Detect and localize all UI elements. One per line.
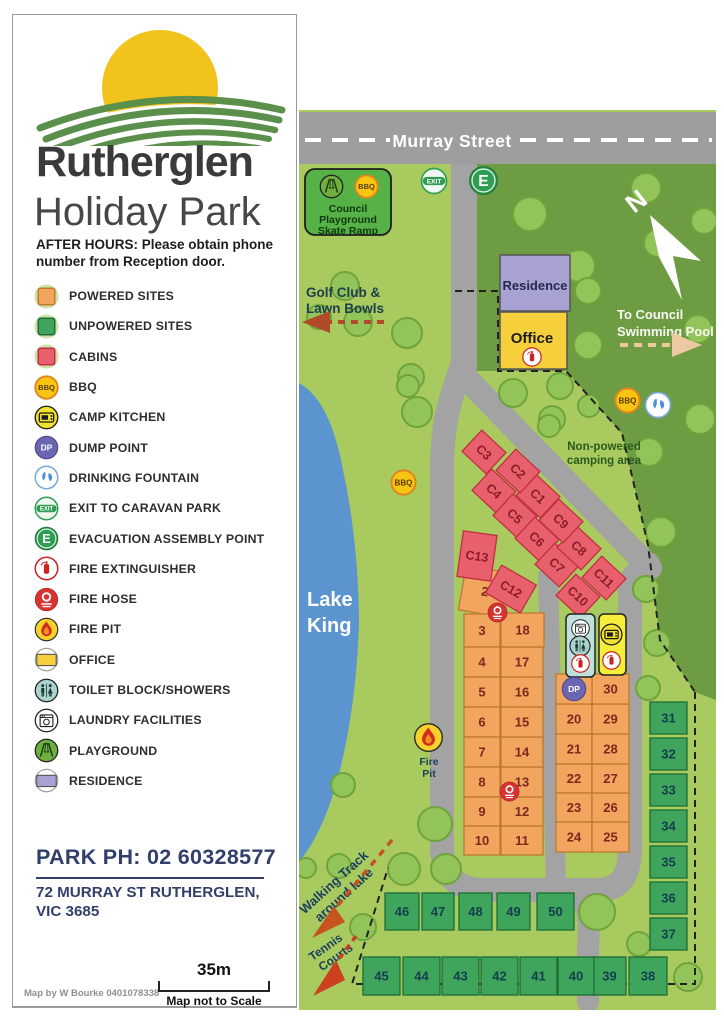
svg-text:Pit: Pit — [422, 768, 436, 780]
svg-text:4: 4 — [478, 655, 486, 670]
svg-text:47: 47 — [431, 904, 445, 919]
powered-site-12: 12 — [501, 797, 543, 826]
evac-icon — [33, 525, 60, 552]
unpowered-site-42: 42 — [481, 957, 518, 995]
fire-hose-icon — [500, 782, 519, 801]
toilet-icon — [570, 636, 590, 656]
scale-note: Map not to Scale — [158, 994, 270, 1008]
legend-item-firepit: FIRE PIT — [33, 614, 264, 644]
svg-text:Swimming Pool: Swimming Pool — [617, 324, 714, 339]
svg-text:27: 27 — [603, 771, 617, 786]
toilet-icon — [33, 677, 60, 704]
powered-site-11: 11 — [501, 826, 543, 855]
powered-site-23: 23 — [556, 793, 592, 822]
svg-text:50: 50 — [548, 904, 562, 919]
scale-bar: 35m Map not to Scale — [158, 960, 270, 1008]
svg-text:Fire: Fire — [419, 756, 438, 768]
legend-label: DRINKING FOUNTAIN — [69, 471, 199, 485]
fire-pit-icon — [415, 724, 443, 752]
park-title-line2: Holiday Park — [34, 190, 261, 235]
unpowered-site-50: 50 — [537, 893, 574, 930]
legend-item-bbq: BBQ — [33, 372, 264, 402]
legend-label: CAMP KITCHEN — [69, 410, 165, 424]
svg-text:14: 14 — [515, 745, 530, 760]
bbq-icon — [391, 470, 415, 494]
unpowered-site-41: 41 — [520, 957, 557, 995]
laundry-icon — [572, 620, 590, 638]
cabin-C13: C13 — [457, 531, 497, 581]
powered-site-6: 6 — [464, 707, 500, 737]
svg-text:20: 20 — [567, 712, 581, 727]
unpowered-site-37: 37 — [650, 918, 687, 950]
evacuation-point-icon — [470, 167, 498, 195]
fountain-icon — [33, 464, 60, 491]
legend-item-laundry: LAUNDRY FACILITIES — [33, 705, 264, 735]
legend-label: LAUNDRY FACILITIES — [69, 713, 202, 727]
svg-text:Lawn Bowls: Lawn Bowls — [306, 301, 384, 316]
powered-site-17: 17 — [501, 647, 543, 677]
svg-text:30: 30 — [603, 682, 617, 697]
lake-label-1: Lake — [307, 589, 353, 611]
residence-icon — [33, 767, 60, 794]
powered-site-24: 24 — [556, 822, 592, 852]
toilet-block — [566, 614, 595, 677]
unpowered-site-39: 39 — [593, 957, 626, 995]
office-label: Office — [511, 330, 554, 347]
unpowered-site-36: 36 — [650, 882, 687, 914]
legend-label: PLAYGROUND — [69, 744, 157, 758]
svg-text:25: 25 — [603, 830, 617, 845]
unpowered-site-33: 33 — [650, 774, 687, 806]
park-phone: PARK PH: 02 60328577 — [36, 845, 276, 870]
unpowered-site-32: 32 — [650, 738, 687, 770]
after-hours-note: AFTER HOURS: Please obtain phone number … — [36, 237, 273, 270]
svg-text:35: 35 — [661, 855, 675, 870]
map-credit: Map by W Bourke 0401078338 — [24, 988, 159, 999]
legend-item-evac: EVACUATION ASSEMBLY POINT — [33, 523, 264, 553]
legend-label: FIRE PIT — [69, 622, 121, 636]
svg-text:12: 12 — [515, 804, 529, 819]
powered-site-9: 9 — [464, 797, 500, 826]
camp-kitchen-block — [599, 614, 626, 675]
council-playground-block: Council Playground Skate Ramp — [305, 169, 391, 237]
svg-text:17: 17 — [515, 655, 529, 670]
dump-point-icon — [562, 677, 585, 700]
svg-text:24: 24 — [567, 830, 582, 845]
bbq-icon — [33, 374, 60, 401]
svg-text:3: 3 — [478, 623, 485, 638]
powered-site-30: 30 — [592, 674, 629, 704]
svg-text:camping area: camping area — [567, 455, 642, 467]
legend-label: UNPOWERED SITES — [69, 319, 192, 333]
fire-hose-icon — [488, 603, 507, 622]
exit-icon — [422, 169, 447, 194]
powered-site-15: 15 — [501, 707, 543, 737]
svg-text:33: 33 — [661, 783, 675, 798]
svg-text:Golf Club &: Golf Club & — [306, 285, 380, 300]
legend-item-square-cabin: CABINS — [33, 342, 264, 372]
kitchen-icon — [33, 404, 60, 431]
unpowered-site-34: 34 — [650, 810, 687, 842]
street-label: Murray Street — [392, 131, 511, 151]
scale-length: 35m — [158, 960, 270, 980]
ext-icon — [33, 555, 60, 582]
hose-icon — [33, 586, 60, 613]
powered-site-27: 27 — [592, 764, 629, 793]
legend-label: EXIT TO CARAVAN PARK — [69, 501, 221, 515]
legend-item-ext: FIRE EXTINGUISHER — [33, 554, 264, 584]
scale-bracket — [158, 981, 270, 992]
svg-text:32: 32 — [661, 747, 675, 762]
legend-item-kitchen: CAMP KITCHEN — [33, 402, 264, 432]
svg-text:44: 44 — [414, 969, 429, 984]
legend-item-fountain: DRINKING FOUNTAIN — [33, 463, 264, 493]
park-map: Murray Street Coun — [299, 110, 716, 1010]
square-cabin-icon — [33, 343, 60, 370]
drinking-fountain-icon — [646, 393, 671, 418]
legend-label: EVACUATION ASSEMBLY POINT — [69, 532, 264, 546]
svg-text:15: 15 — [515, 715, 529, 730]
legend-item-square-unpowered: UNPOWERED SITES — [33, 311, 264, 341]
legend-label: TOILET BLOCK/SHOWERS — [69, 683, 231, 697]
legend-item-dp: DUMP POINT — [33, 432, 264, 462]
legend-label: POWERED SITES — [69, 289, 174, 303]
svg-text:23: 23 — [567, 800, 581, 815]
legend-label: RESIDENCE — [69, 774, 143, 788]
residence-label: Residence — [502, 278, 567, 293]
unpowered-site-40: 40 — [558, 957, 594, 995]
legend-item-hose: FIRE HOSE — [33, 584, 264, 614]
svg-text:43: 43 — [453, 969, 467, 984]
powered-site-28: 28 — [592, 734, 629, 764]
svg-text:38: 38 — [641, 969, 655, 984]
svg-text:6: 6 — [478, 715, 485, 730]
office-icon — [33, 646, 60, 673]
legend-label: CABINS — [69, 350, 117, 364]
square-powered-icon — [33, 283, 60, 310]
powered-site-14: 14 — [501, 737, 543, 767]
svg-text:42: 42 — [492, 969, 506, 984]
laundry-icon — [33, 707, 60, 734]
legend-label: FIRE EXTINGUISHER — [69, 562, 196, 576]
powered-site-16: 16 — [501, 677, 543, 707]
svg-text:10: 10 — [475, 833, 489, 848]
phone-underline — [36, 877, 264, 879]
powered-site-21: 21 — [556, 734, 592, 764]
svg-text:11: 11 — [515, 833, 529, 848]
svg-text:Non-powered: Non-powered — [567, 441, 640, 453]
svg-text:49: 49 — [506, 904, 520, 919]
unpowered-site-46: 46 — [385, 893, 419, 930]
svg-text:36: 36 — [661, 891, 675, 906]
svg-text:Skate Ramp: Skate Ramp — [318, 225, 378, 237]
svg-text:18: 18 — [515, 623, 529, 638]
svg-text:45: 45 — [374, 969, 388, 984]
legend-item-office: OFFICE — [33, 645, 264, 675]
legend-label: BBQ — [69, 380, 97, 394]
svg-text:28: 28 — [603, 742, 617, 757]
svg-text:8: 8 — [478, 775, 485, 790]
lake-label-2: King — [307, 615, 351, 637]
svg-text:46: 46 — [395, 904, 409, 919]
playground-icon — [33, 737, 60, 764]
legend-item-exit: EXIT TO CARAVAN PARK — [33, 493, 264, 523]
unpowered-site-47: 47 — [422, 893, 454, 930]
svg-text:48: 48 — [468, 904, 482, 919]
svg-text:40: 40 — [569, 969, 583, 984]
unpowered-site-43: 43 — [442, 957, 479, 995]
svg-text:22: 22 — [567, 771, 581, 786]
legend-label: OFFICE — [69, 653, 115, 667]
svg-text:29: 29 — [603, 712, 617, 727]
svg-text:37: 37 — [661, 927, 675, 942]
powered-site-29: 29 — [592, 704, 629, 734]
fire-extinguisher-icon — [572, 655, 590, 673]
park-address: 72 MURRAY ST RUTHERGLEN, VIC 3685 — [36, 884, 260, 921]
svg-text:34: 34 — [661, 819, 676, 834]
svg-text:41: 41 — [531, 969, 545, 984]
powered-site-25: 25 — [592, 822, 629, 852]
svg-text:39: 39 — [602, 969, 616, 984]
playground-icon — [320, 175, 343, 198]
powered-site-22: 22 — [556, 764, 592, 793]
svg-text:To Council: To Council — [617, 307, 683, 322]
map-legend: POWERED SITESUNPOWERED SITESCABINSBBQCAM… — [33, 281, 264, 796]
bbq-icon — [355, 175, 378, 198]
powered-site-18: 18 — [501, 613, 544, 647]
unpowered-site-45: 45 — [363, 957, 400, 995]
park-title-line1: Rutherglen — [36, 138, 253, 187]
bbq-icon — [615, 388, 639, 412]
svg-text:21: 21 — [567, 742, 581, 757]
powered-site-4: 4 — [464, 647, 500, 677]
legend-item-square-powered: POWERED SITES — [33, 281, 264, 311]
unpowered-site-44: 44 — [403, 957, 440, 995]
powered-site-8: 8 — [464, 767, 500, 797]
svg-text:26: 26 — [603, 800, 617, 815]
powered-site-26: 26 — [592, 793, 629, 822]
square-unpowered-icon — [33, 313, 60, 340]
dp-icon — [33, 434, 60, 461]
unpowered-site-31: 31 — [650, 702, 687, 734]
powered-site-10: 10 — [464, 826, 500, 855]
svg-text:16: 16 — [515, 685, 529, 700]
powered-site-7: 7 — [464, 737, 500, 767]
legend-item-playground: PLAYGROUND — [33, 735, 264, 765]
svg-text:7: 7 — [478, 745, 485, 760]
exit-icon — [33, 495, 60, 522]
unpowered-site-49: 49 — [497, 893, 530, 930]
legend-label: DUMP POINT — [69, 441, 148, 455]
legend-item-toilet: TOILET BLOCK/SHOWERS — [33, 675, 264, 705]
svg-text:31: 31 — [661, 711, 675, 726]
powered-site-5: 5 — [464, 677, 500, 707]
powered-site-20: 20 — [556, 704, 592, 734]
park-map-page: Rutherglen Holiday Park AFTER HOURS: Ple… — [0, 0, 724, 1024]
park-logo — [28, 14, 286, 146]
legend-label: FIRE HOSE — [69, 592, 137, 606]
fire-extinguisher-icon — [603, 652, 621, 670]
camp-kitchen-icon — [601, 624, 622, 645]
legend-item-residence: RESIDENCE — [33, 766, 264, 796]
unpowered-site-35: 35 — [650, 846, 687, 878]
svg-text:9: 9 — [478, 804, 485, 819]
unpowered-site-38: 38 — [629, 957, 667, 995]
fire-extinguisher-icon — [523, 348, 541, 366]
unpowered-site-48: 48 — [459, 893, 492, 930]
svg-text:5: 5 — [478, 685, 485, 700]
firepit-icon — [33, 616, 60, 643]
